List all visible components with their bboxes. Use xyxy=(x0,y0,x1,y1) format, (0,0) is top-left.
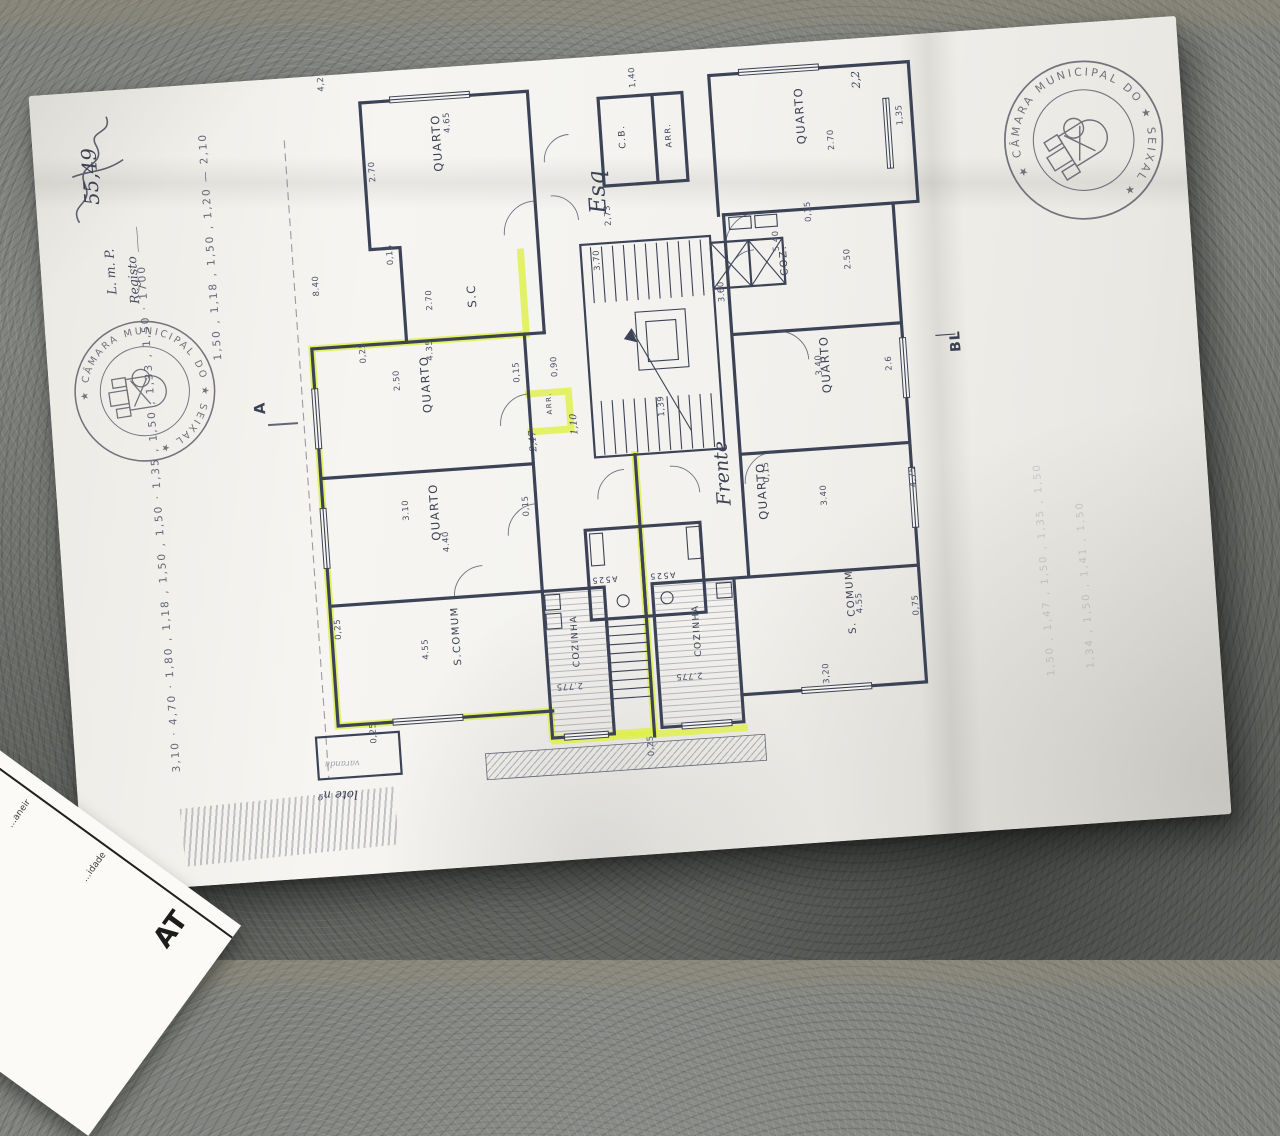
section-marker-a: A xyxy=(250,402,269,415)
dimension-label: 3.40 xyxy=(813,354,824,376)
fixtures xyxy=(519,214,804,629)
dimension-label: 0,75 xyxy=(910,594,921,616)
municipal-stamp-right: ★ CÂMARA MUNICIPAL DO ★ SEIXAL ★ xyxy=(963,20,1204,261)
annotation-label: 2,47 xyxy=(527,429,540,453)
dimension-label: 0,25 xyxy=(646,735,657,757)
registry-line1: L. m. P. xyxy=(101,248,119,295)
floorplan-drawing: QUARTOS.CC.B.ARR.QUARTOCOZ.QUARTOQUARTOQ… xyxy=(268,32,1022,804)
room-label: C.B. xyxy=(617,124,629,149)
dimension-label: 4.65 xyxy=(442,112,453,134)
room-label: A525 xyxy=(591,574,618,585)
dimension-label: 0,25 xyxy=(358,342,369,364)
door-arcs xyxy=(423,119,824,598)
dimension-label: 4,75 xyxy=(907,466,918,488)
letterhead-fragment-2: …aneir xyxy=(6,798,33,830)
annotation-label: 2,2 xyxy=(849,70,863,89)
letterhead-fragment-1: …idade xyxy=(80,850,108,883)
dimension-label: 3,20 xyxy=(821,663,832,685)
svg-text:★ CÂMARA MUNICIPAL DO ★ SEIXAL: ★ CÂMARA MUNICIPAL DO ★ SEIXAL ★ xyxy=(981,37,1187,243)
dimension-label: 1,39 xyxy=(656,395,667,417)
coat-of-arms xyxy=(1036,106,1117,183)
dimension-label: 0,15 xyxy=(803,201,814,223)
dimension-label: 3.70 xyxy=(592,250,603,272)
dimension-label: 0,15 xyxy=(511,361,522,383)
annotation-label: varanda xyxy=(325,758,360,769)
dimension-label: 4,25 xyxy=(315,70,326,92)
dimension-label: 4.55 xyxy=(854,592,865,614)
dimension-label: 2.50 xyxy=(842,248,853,270)
dimension-label: 2.775 xyxy=(556,680,583,692)
dimension-label: 2.50 xyxy=(392,370,403,392)
dimension-label: 0,25 xyxy=(333,619,344,641)
dimension-label: 1,40 xyxy=(627,67,638,89)
room-label: QUARTO xyxy=(417,355,435,413)
annotation-label: Frente xyxy=(709,440,736,507)
dimension-label: 8.40 xyxy=(311,275,322,297)
room-label: A525 xyxy=(648,570,675,581)
dimension-label: 3.60 xyxy=(716,281,727,303)
dimension-label: 4.55 xyxy=(420,638,431,660)
coat-of-arms xyxy=(106,366,169,419)
dimension-label: 0,25 xyxy=(368,722,379,744)
dimension-label: 5.40 xyxy=(771,230,782,252)
dimension-label: 0,15 xyxy=(761,461,772,483)
annotation-label: BL xyxy=(947,330,964,353)
at-logo-text: AT xyxy=(147,905,194,953)
dimension-chain-right-faint-1: 1,50 , 1,47 , 1,50 , 1,35 , 1,50 xyxy=(1020,297,1057,677)
dimension-label: 3.10 xyxy=(401,499,412,521)
hatched-floors xyxy=(475,579,767,780)
municipal-stamp-left: ★ CÂMARA MUNICIPAL DO ★ SEIXAL ★ xyxy=(56,303,233,480)
dimension-label: 1,35 xyxy=(894,104,905,126)
floorplan-sheet: 55,49 L. m. P. Registo ____ 3,10 · 4,70 … xyxy=(28,16,1231,894)
room-label: QUARTO xyxy=(791,86,809,144)
dimension-label: 0,15 xyxy=(521,495,532,517)
dimension-label: 2.70 xyxy=(826,129,837,151)
windows xyxy=(291,59,931,756)
dimension-label: 4.40 xyxy=(441,531,452,553)
dimension-label: 0,15 xyxy=(385,244,396,266)
room-label: S.COMUM xyxy=(449,606,464,666)
dimension-label: 2.70 xyxy=(424,289,435,311)
dimension-label: 2.775 xyxy=(675,669,702,681)
staircase xyxy=(590,240,714,455)
dimension-label: 3.40 xyxy=(819,484,830,506)
dimension-label: 2.70 xyxy=(367,161,378,183)
annotation-label: 1,10 xyxy=(568,413,580,435)
dimension-label: 4.35 xyxy=(424,339,435,361)
dimension-label: 2.6 xyxy=(884,355,895,371)
svg-text:★ CÂMARA MUNICIPAL DO ★ SEIXAL: ★ CÂMARA MUNICIPAL DO ★ SEIXAL ★ xyxy=(70,316,219,465)
room-label: ARR. xyxy=(544,392,554,415)
photo-of-floorplan-document: { "document": { "registry": { "line1": "… xyxy=(0,0,1280,960)
registry-number: 55,49 xyxy=(76,147,104,206)
annotation-label: Esq xyxy=(583,169,612,215)
room-label: S.C xyxy=(464,284,480,308)
room-labels: QUARTOS.CC.B.ARR.QUARTOCOZ.QUARTOQUARTOQ… xyxy=(400,85,860,677)
room-label: ARR. xyxy=(663,122,674,147)
dimension-label: 0,90 xyxy=(549,356,560,378)
dimension-chain-right-faint-2: 1,34 , 1,50 , 1,41 , 1,50 xyxy=(1062,329,1097,669)
pencil-scribble xyxy=(180,787,400,867)
